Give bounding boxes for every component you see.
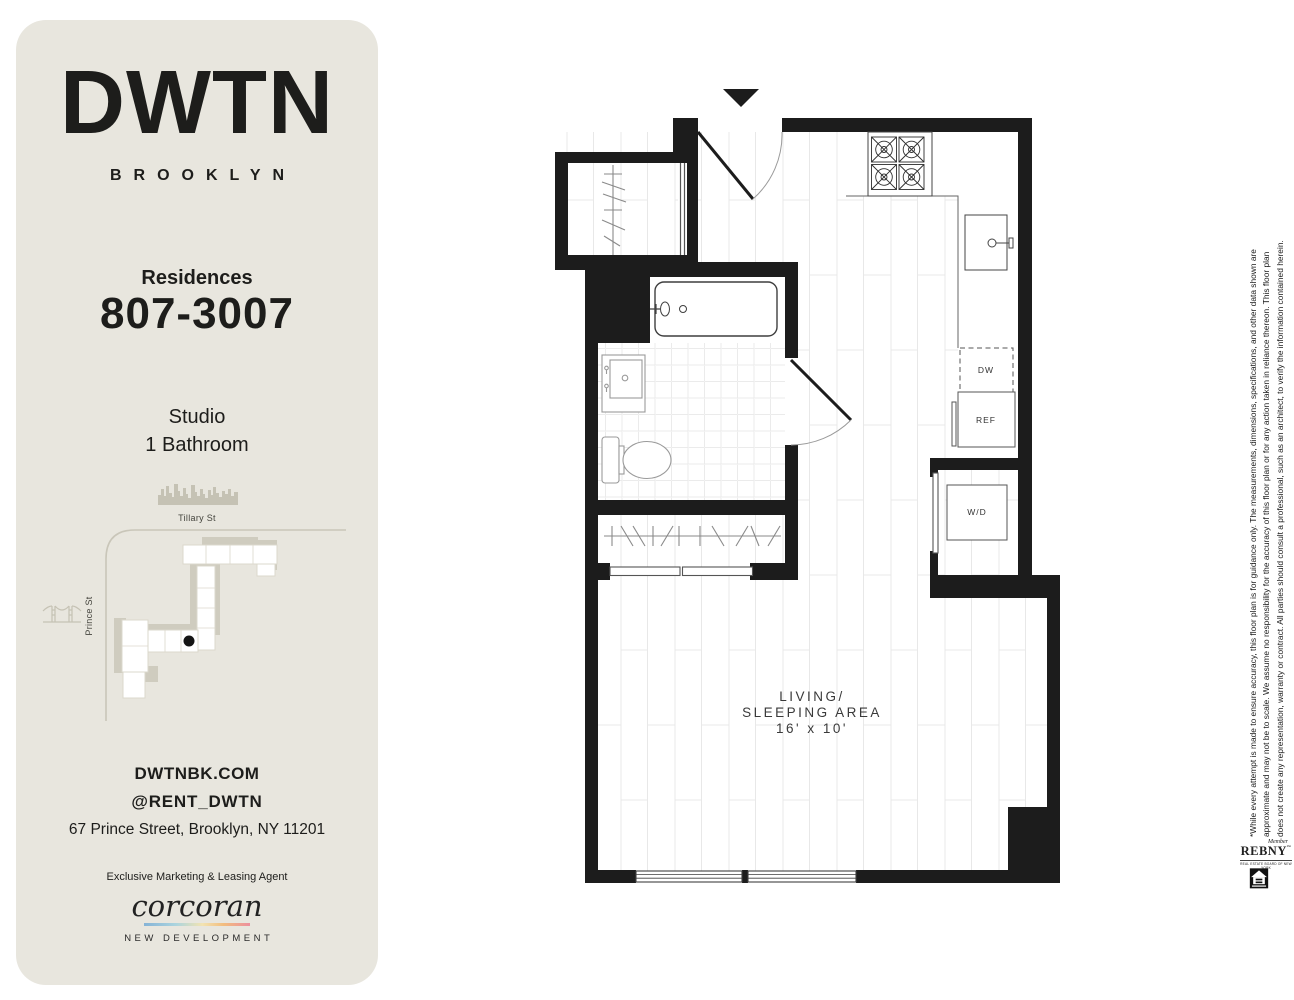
brand-sublogo: BROOKLYN xyxy=(16,167,378,185)
disclaimer-line-3: does not create any representation, warr… xyxy=(1274,120,1287,837)
residences-label: Residences xyxy=(16,267,378,290)
residence-range: 807-3007 xyxy=(16,289,378,339)
website: DWTNBK.COM xyxy=(16,764,378,784)
prince-st-label: Prince St xyxy=(84,596,94,635)
brokerage-logo: corcoran xyxy=(16,889,378,923)
bridge-icon xyxy=(43,606,81,622)
disclaimer-line-1: *While every attempt is made to ensure a… xyxy=(1247,120,1260,837)
sidebar-card: DWTN BROOKLYN Residences 807-3007 Studio… xyxy=(16,20,378,985)
unit-type: Studio xyxy=(16,406,378,429)
refrigerator-door xyxy=(952,402,956,446)
address: 67 Prince Street, Brooklyn, NY 11201 xyxy=(16,821,378,839)
brokerage-division: NEW DEVELOPMENT xyxy=(16,933,378,944)
location-map: Tillary St Prince St xyxy=(40,478,360,723)
instagram-handle: @RENT_DWTN xyxy=(16,792,378,812)
vanity-sink xyxy=(602,355,645,412)
legal-disclaimer: *While every attempt is made to ensure a… xyxy=(1247,120,1287,837)
skyline-icon xyxy=(158,484,238,505)
rebny-logo: Member REBNY™ REAL ESTATE BOARD OF NEW Y… xyxy=(1236,839,1294,870)
agent-heading: Exclusive Marketing & Leasing Agent xyxy=(16,871,378,883)
disclaimer-line-2: approximate and may not be to scale. We … xyxy=(1260,120,1273,837)
tillary-st-label: Tillary St xyxy=(178,513,216,523)
floor-plan: DW REF W/D xyxy=(540,85,1070,895)
brand-logo: DWTN xyxy=(16,58,378,148)
bathtub xyxy=(650,282,777,336)
washer-dryer-label: W/D xyxy=(967,507,987,517)
refrigerator-label: REF xyxy=(976,415,996,425)
unit-bathrooms: 1 Bathroom xyxy=(16,434,378,457)
living-area-label-1: LIVING/ xyxy=(779,689,845,704)
laundry-closet-door xyxy=(933,473,938,553)
flyer-page: DWTN BROOKLYN Residences 807-3007 Studio… xyxy=(0,0,1294,1000)
living-area-label-2: SLEEPING AREA xyxy=(742,705,882,720)
equal-housing-icon xyxy=(1249,868,1269,892)
location-dot xyxy=(184,636,195,647)
dishwasher-label: DW xyxy=(978,365,994,375)
living-area-dimensions: 16' x 10' xyxy=(776,721,848,736)
stove xyxy=(868,132,932,196)
closet-door-right xyxy=(683,567,753,576)
building-footprint xyxy=(114,537,277,698)
closet-door-left xyxy=(610,567,680,576)
kitchen-sink xyxy=(965,215,1013,270)
brokerage-underline xyxy=(144,923,250,926)
rebny-name: REBNY™ xyxy=(1236,845,1294,859)
